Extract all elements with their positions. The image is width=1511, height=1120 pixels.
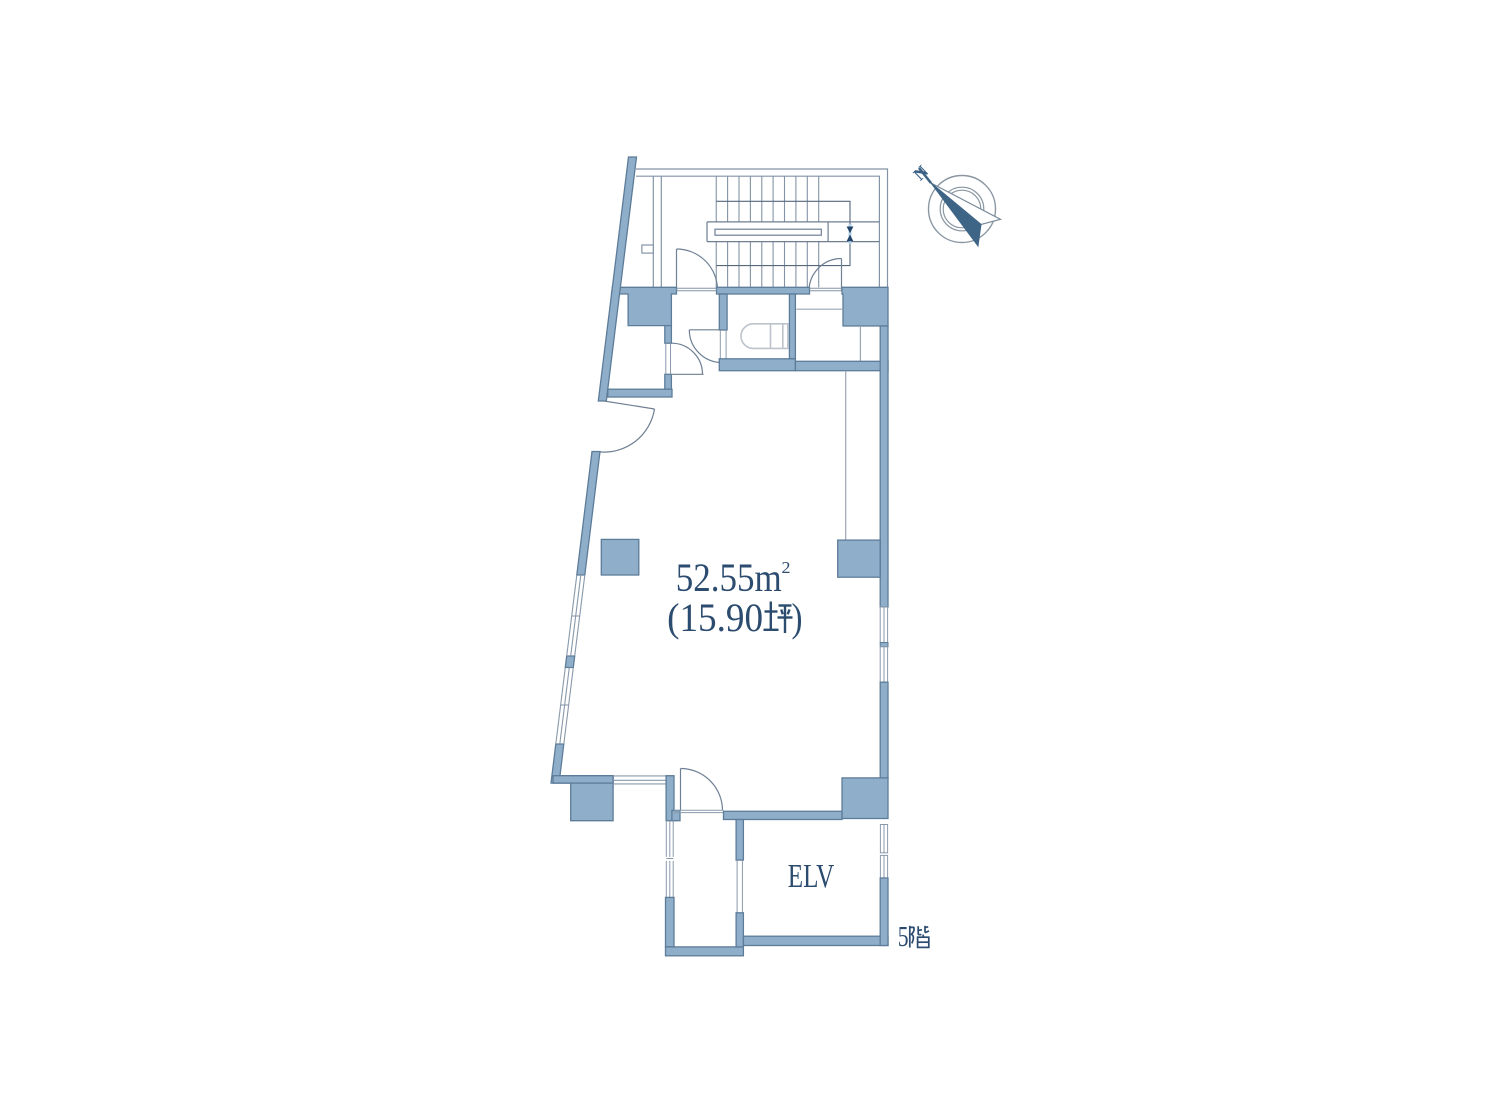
svg-text:): ) (792, 595, 803, 640)
svg-text:ELV: ELV (788, 858, 835, 895)
svg-text:2: 2 (782, 558, 791, 577)
svg-text:52.55m: 52.55m (676, 555, 782, 600)
svg-text:(15.90: (15.90 (667, 595, 763, 640)
svg-text:5: 5 (898, 921, 909, 953)
